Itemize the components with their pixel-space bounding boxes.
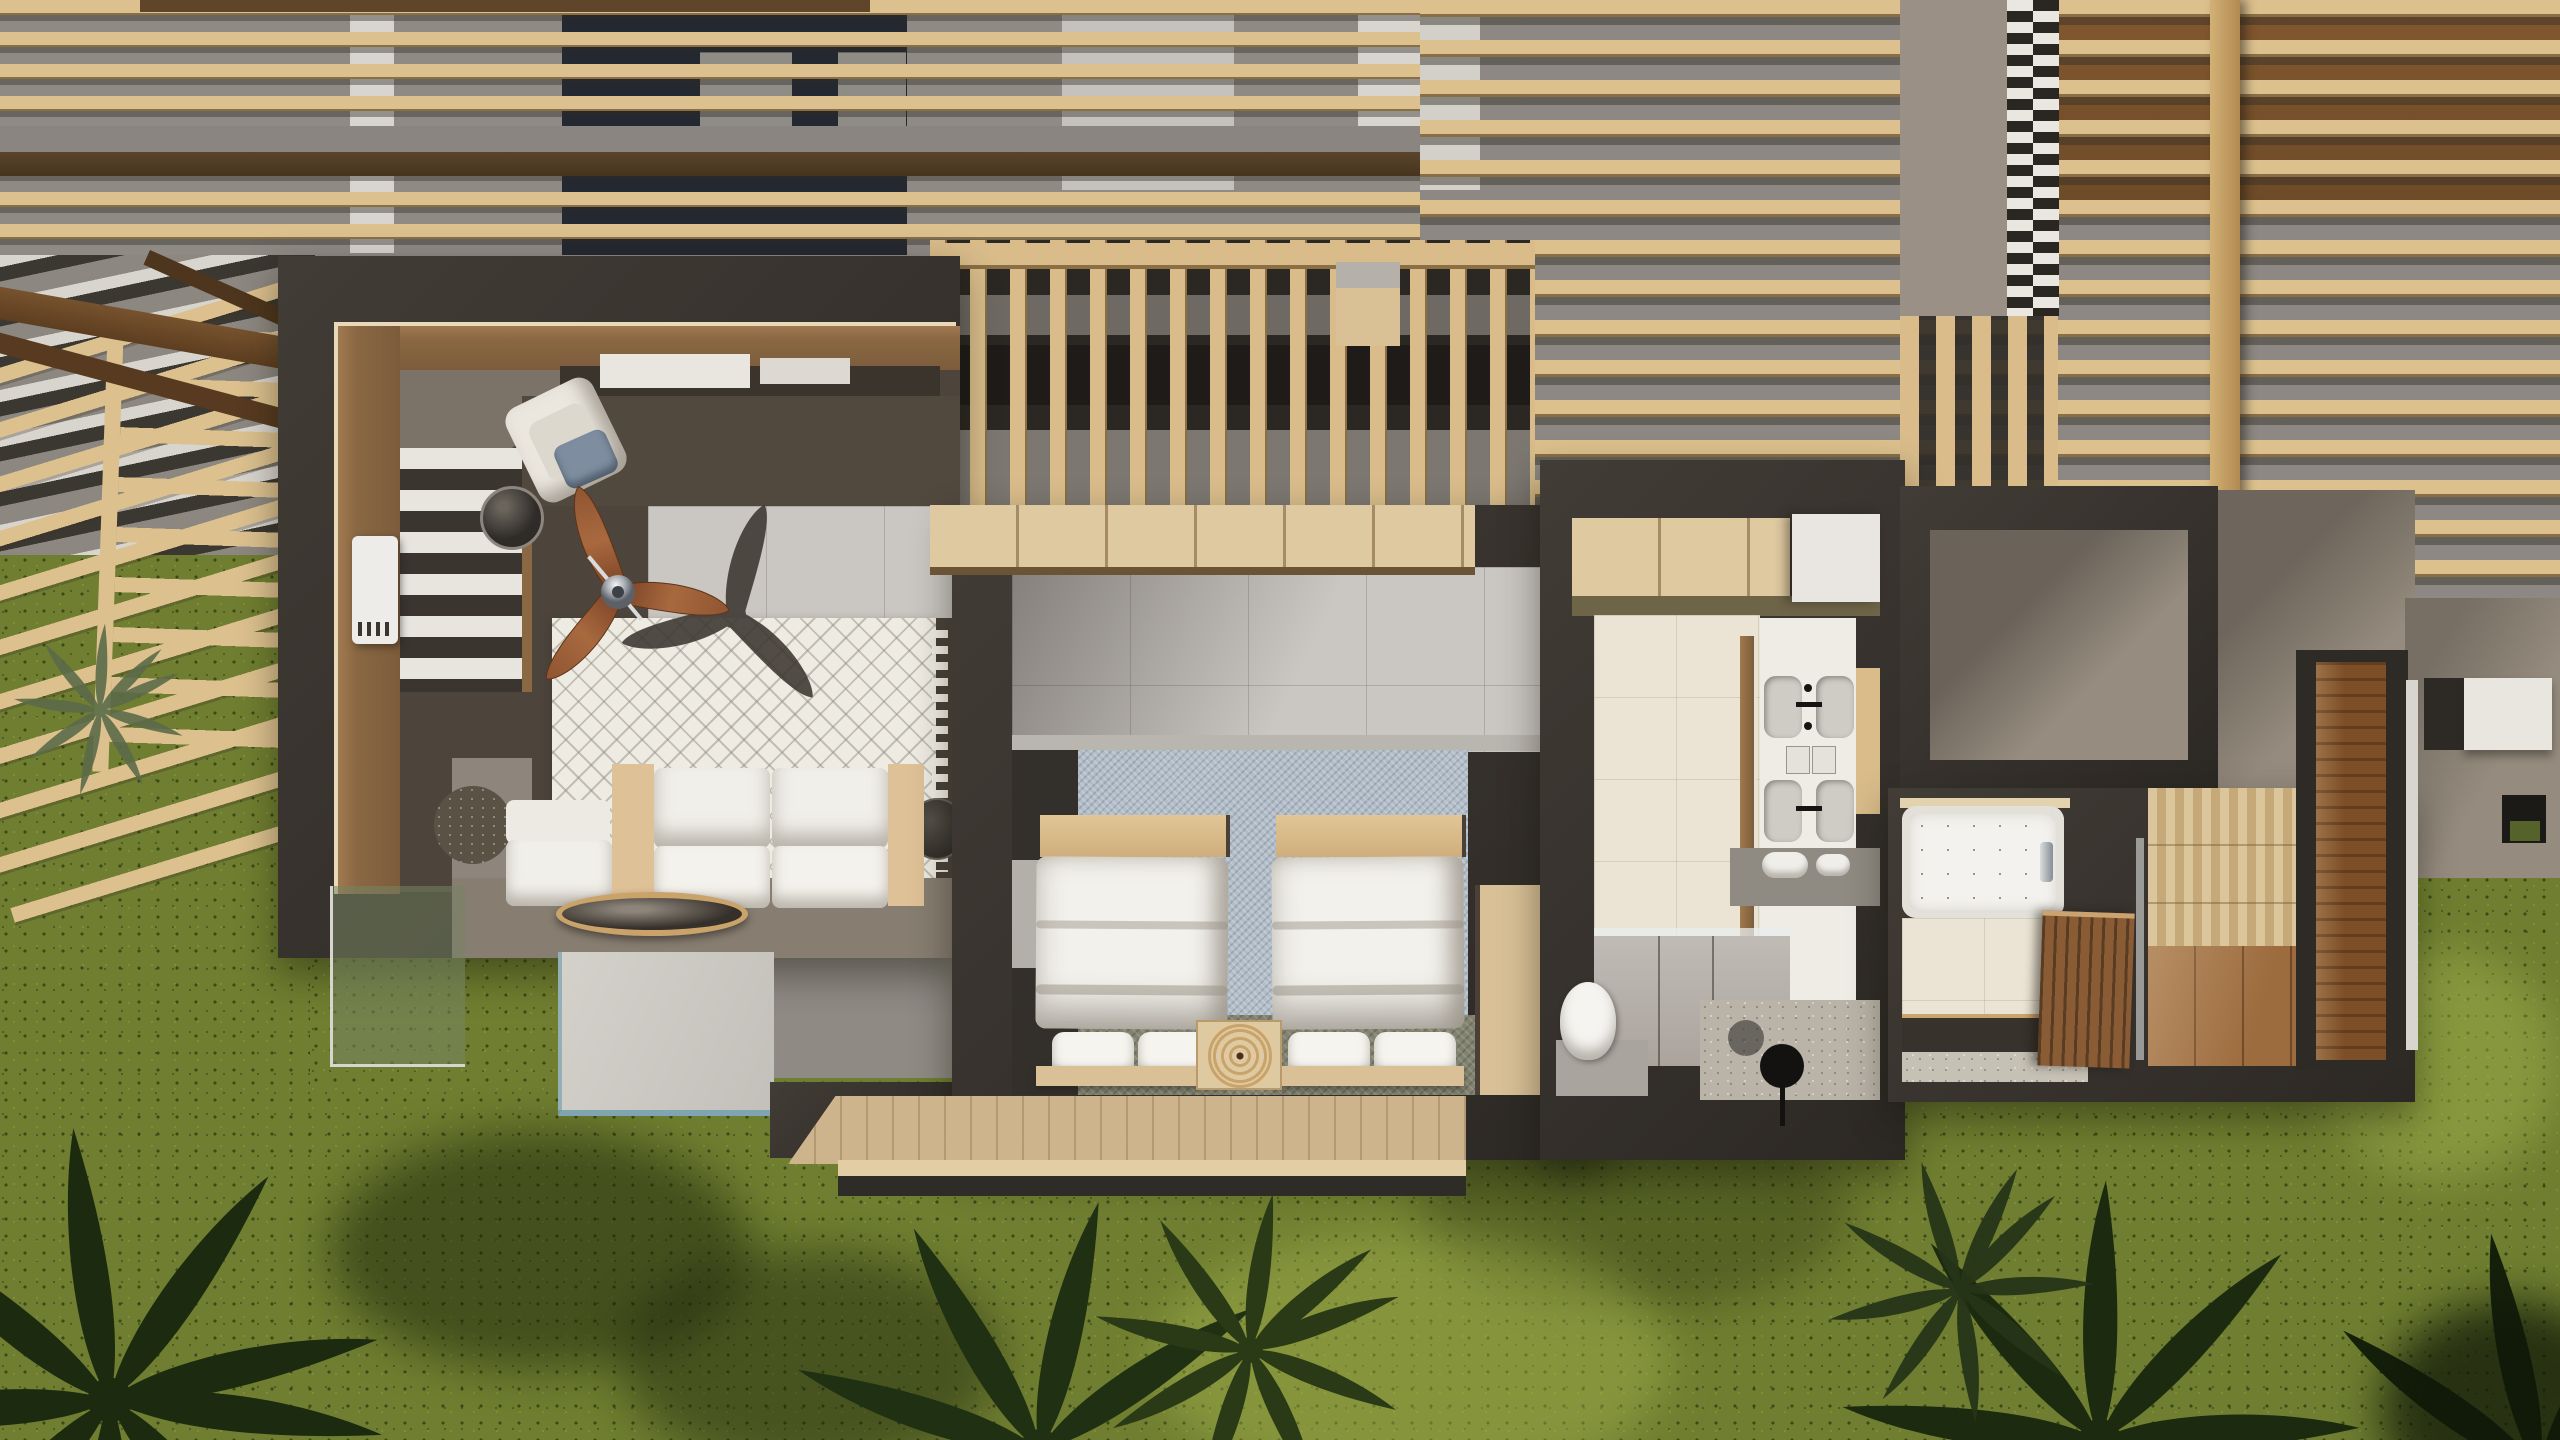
louver-corridor-roof <box>930 240 1535 510</box>
rattan-cabinet <box>2037 910 2134 1068</box>
bed-left-headboard <box>1040 815 1230 857</box>
sink-basin <box>1764 676 1802 738</box>
tub-handle-chrome <box>2040 842 2053 882</box>
bathroom-wardrobe-cabinets <box>1572 518 1790 602</box>
desk-papers <box>600 354 750 388</box>
amenity-tray <box>1812 746 1836 774</box>
towel-roll <box>1816 854 1850 876</box>
shower-glass-edge <box>1594 928 1790 936</box>
duvet-fold <box>1036 984 1228 995</box>
outdoor-counter-dark <box>2424 678 2464 750</box>
fern-plant <box>0 600 210 820</box>
bathroom-white-column <box>1792 514 1880 602</box>
rain-shower-head <box>1760 1044 1804 1088</box>
sofa-chaise-back <box>506 800 610 844</box>
ac-unit <box>352 536 398 644</box>
tub-jets <box>1916 820 2034 904</box>
zigzag-stair-column <box>2033 0 2059 316</box>
faucet-knob <box>1804 722 1812 730</box>
bed-right-headboard <box>1276 815 1466 857</box>
amenity-tray <box>1786 746 1810 774</box>
deck-terrace <box>788 1096 1466 1164</box>
doorway-grass-sliver <box>2510 821 2540 841</box>
flat-roof-taupe <box>1900 0 2008 316</box>
towel-roll <box>1762 852 1808 878</box>
wall-strip <box>1012 735 1540 751</box>
pergola-left-roof <box>0 0 1420 255</box>
bed-right-duvet <box>1271 856 1464 1029</box>
faucet-black <box>1796 702 1822 707</box>
pouf <box>434 786 512 864</box>
door-seam <box>1658 936 1660 1066</box>
zigzag-stair-column <box>2007 0 2033 316</box>
concrete-beam <box>0 126 1420 152</box>
corridor-top-beam <box>930 243 1535 269</box>
palm-tree <box>0 1120 390 1440</box>
timber-beam-dark <box>0 152 1420 176</box>
villa-top-view-render <box>0 0 2560 1440</box>
jetted-bathtub <box>1902 806 2064 918</box>
patio-concrete <box>558 952 774 1116</box>
glass-balustrade-panel <box>330 886 465 1067</box>
bed-right-base <box>1272 1066 1464 1086</box>
vertical-louvers <box>930 240 1535 510</box>
sink-basin <box>1816 780 1854 842</box>
toilet <box>1560 982 1616 1060</box>
glass-divider <box>2136 838 2144 1060</box>
bed-left-duvet <box>1035 856 1228 1029</box>
sofa-seat-cushion <box>772 846 888 908</box>
woven-wall-decor <box>1208 1024 1272 1088</box>
sink-basin <box>1764 780 1802 842</box>
floor-shadow <box>1012 567 1540 752</box>
rain-shower-shadow <box>1728 1020 1764 1056</box>
palm-tree <box>1790 1120 2130 1440</box>
sink-basin <box>1816 676 1854 738</box>
headboard-shelf-band <box>930 505 1475 575</box>
roof-edge-beam <box>140 0 870 12</box>
duvet-fold <box>1036 920 1228 929</box>
desk-papers <box>760 358 850 384</box>
ceiling-fan <box>498 472 738 712</box>
hallway-interior <box>1930 530 2188 760</box>
rooftop-box-lid <box>1336 262 1400 288</box>
sofa-back-cushion <box>654 768 770 848</box>
duvet-fold <box>1272 920 1464 929</box>
vanity-wood-tray <box>1856 668 1880 814</box>
sofa-wood-panel <box>612 764 654 906</box>
garden-doorway <box>2502 795 2546 843</box>
palm-tree <box>1060 1160 1440 1440</box>
duvet-fold <box>1272 984 1464 995</box>
faucet-black <box>1796 806 1822 811</box>
wood-floor-right <box>1475 885 1545 1095</box>
sofa-back-cushion <box>772 768 888 848</box>
hallway-block <box>1900 486 2218 792</box>
sofa-wood-panel <box>888 764 924 906</box>
shower-arm <box>1780 1086 1785 1126</box>
outdoor-counter <box>2464 678 2552 750</box>
rattan-tray-table <box>556 892 748 936</box>
outdoor-court-right <box>2405 598 2560 878</box>
vertical-slat-fence <box>1900 316 2058 508</box>
wardrobe-wood-panel <box>2316 662 2386 1060</box>
faucet-knob <box>1804 684 1812 692</box>
ac-vents <box>358 622 392 636</box>
wall-white-sliver <box>2406 680 2418 1050</box>
bamboo-shower-walls <box>2148 788 2308 952</box>
